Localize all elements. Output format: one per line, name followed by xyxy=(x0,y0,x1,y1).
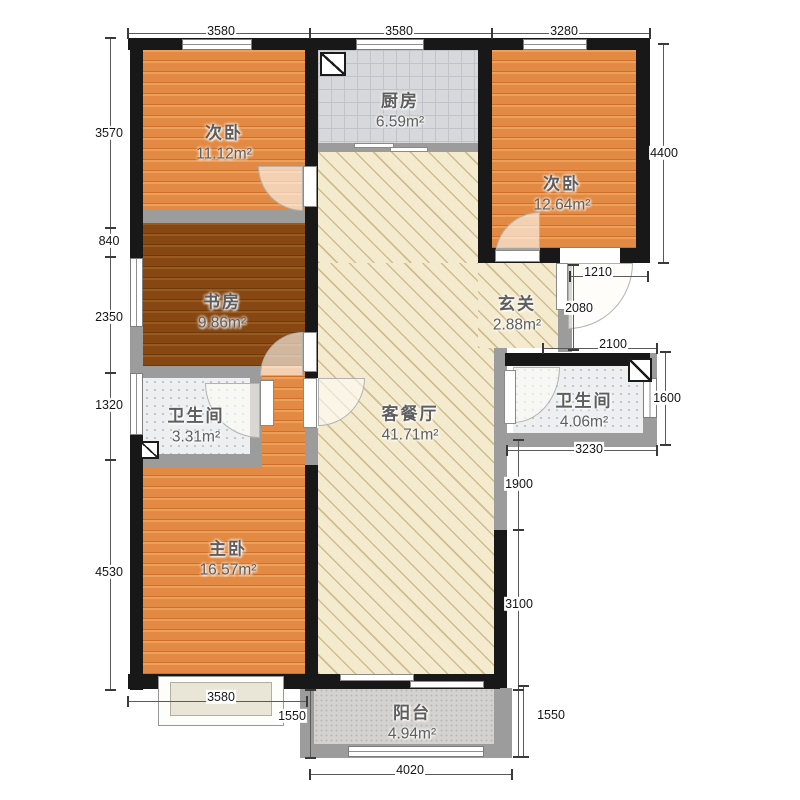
room-name: 阳台 xyxy=(388,699,436,724)
dimension-tick xyxy=(309,28,311,39)
sliding-door-kitchen-a xyxy=(354,143,394,148)
dimension-tick xyxy=(518,685,529,687)
flue-icon-kitchen xyxy=(320,52,346,76)
dimension-tick xyxy=(105,256,116,258)
sliding-door-balcony-b xyxy=(410,681,484,688)
door-leaf-study xyxy=(303,332,317,372)
dimension-tick xyxy=(105,227,116,229)
dimension-label: 1900 xyxy=(504,477,534,491)
dimension-tick xyxy=(105,459,116,461)
room-label-bedroom-top-right: 次卧 12.64m² xyxy=(534,170,591,215)
dimension-label: 2100 xyxy=(598,337,628,351)
dimension-tick xyxy=(127,696,129,707)
dimension-tick xyxy=(568,349,579,351)
dimension-tick xyxy=(105,37,116,39)
dimension-tick xyxy=(309,769,311,780)
wall-bed2-right xyxy=(636,38,650,263)
room-area: 16.57m² xyxy=(200,562,257,580)
dimension-tick xyxy=(105,689,116,691)
dimension-tick xyxy=(660,351,671,353)
dimension-label: 3100 xyxy=(504,597,534,611)
dimension-tick xyxy=(513,529,524,531)
floor-plan: 3580 3580 3280 3570 840 2350 1320 4530 4… xyxy=(0,0,800,800)
door-leaf-bath-right xyxy=(504,370,516,424)
sliding-door-balcony-a xyxy=(340,674,414,681)
wall-entry-top-corner xyxy=(620,248,650,263)
dimension-tick xyxy=(506,445,508,456)
dimension-tick xyxy=(105,372,116,374)
dimension-tick xyxy=(513,439,524,441)
room-label-master-bedroom: 主卧 16.57m² xyxy=(200,535,257,580)
room-label-bathroom-right: 卫生间 4.06m² xyxy=(556,387,613,432)
dimension-label: 1320 xyxy=(94,398,124,412)
room-name: 书房 xyxy=(198,288,246,313)
room-name: 主卧 xyxy=(200,535,257,560)
dimension-label: 840 xyxy=(98,234,121,248)
room-area: 11.12m² xyxy=(196,146,252,164)
floor-living-main xyxy=(318,263,494,674)
room-label-bedroom-top-left: 次卧 11.12m² xyxy=(196,119,252,164)
window-balcony-bottom xyxy=(348,746,484,757)
dimension-label: 3230 xyxy=(574,442,604,456)
dimension-label: 1600 xyxy=(652,391,682,405)
dimension-label: 3580 xyxy=(206,24,236,38)
sliding-door-kitchen-b xyxy=(390,147,428,152)
dimension-tick xyxy=(647,271,649,282)
room-name: 次卧 xyxy=(196,119,252,144)
room-area: 6.59m² xyxy=(376,114,424,132)
wall-balcony-right xyxy=(494,688,512,758)
room-name: 玄关 xyxy=(493,290,541,315)
dimension-tick xyxy=(511,769,513,780)
room-label-balcony: 阳台 4.94m² xyxy=(388,699,436,744)
dimension-tick xyxy=(569,271,571,282)
dimension-label: 4020 xyxy=(395,763,425,777)
dimension-tick xyxy=(491,28,493,39)
dimension-tick xyxy=(305,689,316,691)
dimension-tick xyxy=(305,757,316,759)
dimension-tick xyxy=(127,28,129,39)
dimension-tick xyxy=(518,756,529,758)
room-area: 4.06m² xyxy=(556,414,613,432)
door-leaf-bed2 xyxy=(495,250,540,262)
dimension-label: 3580 xyxy=(384,24,414,38)
dimension-label: 4530 xyxy=(94,565,124,579)
room-area: 3.31m² xyxy=(168,429,225,447)
room-label-study: 书房 9.86m² xyxy=(198,288,246,333)
room-name: 卫生间 xyxy=(556,387,613,412)
flue-icon-bath-left xyxy=(140,441,159,459)
dimension-label: 1210 xyxy=(583,265,613,279)
floor-living-upper xyxy=(318,152,478,263)
dimension-label: 4400 xyxy=(649,146,679,160)
dimension-tick xyxy=(568,264,579,266)
wall-study-bath xyxy=(143,366,262,378)
dimension-tick xyxy=(542,343,544,354)
room-label-kitchen: 厨房 6.59m² xyxy=(376,87,424,132)
door-leaf-bath-left xyxy=(260,380,274,426)
window-bed2-top xyxy=(523,39,587,50)
dimension-tick xyxy=(658,262,669,264)
dimension-tick xyxy=(658,43,669,45)
room-label-living-dining: 客餐厅 41.71m² xyxy=(382,400,439,445)
room-area: 9.86m² xyxy=(198,315,246,333)
window-bath-left xyxy=(130,373,143,435)
wall-master-right xyxy=(305,465,318,688)
dimension-line-1550-right xyxy=(523,686,524,757)
dimension-label: 3580 xyxy=(206,690,236,704)
window-bed1-top xyxy=(182,39,252,50)
dimension-label: 2080 xyxy=(564,301,594,315)
wall-bath-left-bottom xyxy=(143,454,262,467)
dimension-label: 1550 xyxy=(536,708,566,722)
wall-kitchen-bed2 xyxy=(478,38,492,263)
wall-bed1-study xyxy=(143,210,305,223)
dimension-tick xyxy=(660,444,671,446)
dimension-label: 3280 xyxy=(549,24,579,38)
dimension-line-1550-left xyxy=(310,690,311,758)
dimension-tick xyxy=(656,445,658,456)
room-label-bathroom-left: 卫生间 3.31m² xyxy=(168,402,225,447)
dimension-label: 3570 xyxy=(94,126,124,140)
dimension-tick xyxy=(656,343,658,354)
wall-left-gray-segment xyxy=(130,327,143,373)
dimension-tick xyxy=(513,689,524,691)
room-area: 4.94m² xyxy=(388,726,436,744)
wall-left-upper xyxy=(130,38,143,258)
door-leaf-bed1 xyxy=(303,166,317,207)
room-name: 厨房 xyxy=(376,87,424,112)
wall-corridor-right-gray xyxy=(305,428,318,465)
window-study-left xyxy=(130,258,143,327)
dimension-tick xyxy=(649,28,651,39)
dimension-label: 1550 xyxy=(277,709,307,723)
room-name: 次卧 xyxy=(534,170,591,195)
window-kitchen-top xyxy=(356,39,424,50)
room-name: 卫生间 xyxy=(168,402,225,427)
dimension-label: 2350 xyxy=(94,310,124,324)
door-leaf-master xyxy=(303,378,317,428)
room-area: 12.64m² xyxy=(534,197,591,215)
wall-living-left xyxy=(305,38,318,378)
room-name: 客餐厅 xyxy=(382,400,439,425)
floor-bedroom-top-right xyxy=(492,50,636,248)
room-area: 41.71m² xyxy=(382,427,439,445)
flue-icon-bath-right xyxy=(628,358,652,382)
room-label-entry-hall: 玄关 2.88m² xyxy=(493,290,541,335)
wall-left-lower xyxy=(130,435,143,690)
room-area: 2.88m² xyxy=(493,317,541,335)
dimension-tick xyxy=(306,696,308,707)
